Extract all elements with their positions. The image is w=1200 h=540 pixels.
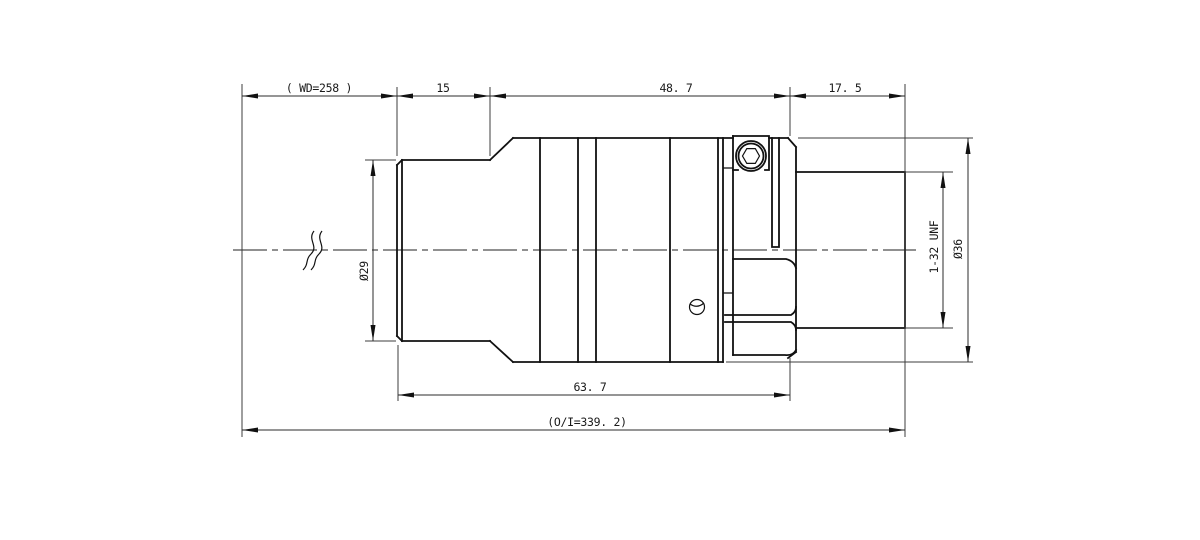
dim-label-dia29: Ø29 (357, 261, 371, 281)
dim-label-63-7: 63. 7 (573, 380, 606, 394)
set-screw-outer (736, 141, 766, 171)
hex-flat-edge-2 (725, 307, 796, 315)
dim-label-15: 15 (436, 81, 449, 95)
hex-flat-edge-1 (733, 259, 796, 268)
body-rear-edge (718, 138, 723, 362)
locking-collar (725, 136, 796, 358)
hex-flat-bottom (733, 350, 796, 355)
screw-guide-slot (772, 138, 779, 247)
hex-socket-icon (743, 149, 760, 164)
extension-lines (242, 84, 973, 437)
dim-label-dia36: Ø36 (951, 239, 965, 259)
body-collar-steps (723, 168, 733, 293)
dim-label-overall: (O/I=339. 2) (547, 415, 626, 429)
dim-label-17-5: 17. 5 (828, 81, 861, 95)
lens-technical-drawing: ( WD=258 ) 15 48. 7 17. 5 Ø29 1-32 UNF Ø… (0, 0, 1200, 540)
hex-flat-edge-3 (725, 322, 796, 330)
drawing-page: ( WD=258 ) 15 48. 7 17. 5 Ø29 1-32 UNF Ø… (0, 0, 1200, 540)
dim-label-48-7: 48. 7 (659, 81, 692, 95)
index-screw-hole (690, 300, 705, 315)
dimension-labels: ( WD=258 ) 15 48. 7 17. 5 Ø29 1-32 UNF Ø… (286, 81, 965, 429)
dim-label-wd: ( WD=258 ) (286, 81, 352, 95)
index-screw-slot (690, 303, 704, 306)
dim-label-thread: 1-32 UNF (927, 220, 941, 273)
lens-side-view (397, 136, 905, 362)
